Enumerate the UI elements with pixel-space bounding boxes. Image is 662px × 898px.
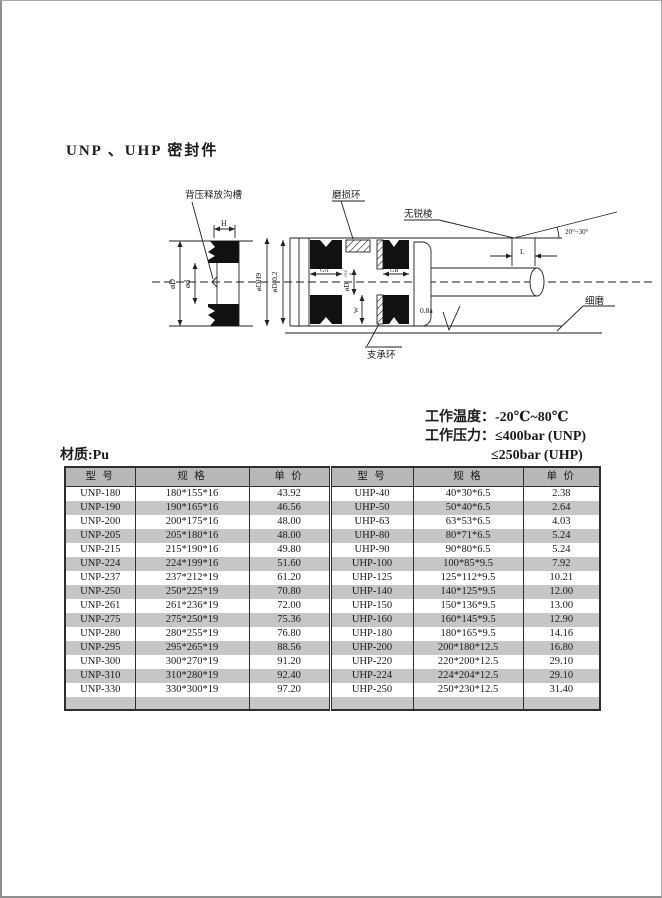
support-ring-strip-bottom [377,295,383,324]
working-temperature-line: 工作温度：-20℃~80℃ [425,408,662,427]
table-cell: UHP-150 [330,599,413,613]
table-cell: UHP-40 [330,487,413,502]
od-dim-label: øD [168,279,177,289]
table-cell: 13.00 [523,599,600,613]
table-cell: 16.80 [523,641,600,655]
table-cell: UNP-300 [65,655,135,669]
catalog-page: UNP 、UHP 密封件 [0,0,662,898]
table-cell: UHP-63 [330,515,413,529]
table-row: UNP-330330*300*1997.20UHP-250250*230*12.… [65,683,600,697]
rod-seal-b-bottom [383,295,409,324]
table-cell: UHP-220 [330,655,413,669]
table-cell: 5.24 [523,543,600,557]
table-cell: 92.40 [249,669,330,683]
table-row: UNP-190190*165*1646.56UHP-5050*40*6.52.6… [65,501,600,515]
table-cell: UNP-190 [65,501,135,515]
table-cell: 12.00 [523,585,600,599]
rod-seal-a-top [310,240,342,269]
table-cell: 10.21 [523,571,600,585]
col-header-price-unp: 单 价 [249,467,330,487]
table-cell: UHP-160 [330,613,413,627]
price-table-body: UNP-180180*155*1643.92UHP-4040*30*6.52.3… [65,487,600,711]
table-cell: 50*40*6.5 [413,501,523,515]
angle-label: 20°~30° [565,228,589,236]
table-cell: 72.00 [249,599,330,613]
table-cell: 48.00 [249,515,330,529]
odh9-dim-label: øDH9 [254,273,263,292]
wear-ring [346,240,370,252]
working-conditions: 工作温度：-20℃~80℃ 工作压力：≤400bar (UNP) ≤250bar… [425,408,662,465]
table-cell: 2.38 [523,487,600,502]
table-cell: UHP-90 [330,543,413,557]
seal-profile-top [208,241,239,263]
col-header-price-uhp: 单 价 [523,467,600,487]
table-cell: UHP-100 [330,557,413,571]
rod-seal-a-bottom [310,295,342,324]
table-cell [135,697,249,710]
table-cell: 140*125*9.5 [413,585,523,599]
table-cell: 215*190*16 [135,543,249,557]
wear-ring-label: 磨损环 [332,189,361,201]
table-cell: 180*165*9.5 [413,627,523,641]
table-row: UNP-237237*212*1961.20UHP-125125*112*9.5… [65,571,600,585]
col-header-spec-uhp: 规 格 [413,467,523,487]
table-cell: UNP-205 [65,529,135,543]
seal-profile-bottom [208,304,239,326]
table-row: UNP-224224*199*1651.60UHP-100100*85*9.57… [65,557,600,571]
table-cell: 125*112*9.5 [413,571,523,585]
table-cell: 97.20 [249,683,330,697]
table-cell: UNP-330 [65,683,135,697]
table-header-row: 型 号 规 格 单 价 型 号 规 格 单 价 [65,467,600,487]
table-cell: UHP-180 [330,627,413,641]
table-cell: UNP-224 [65,557,135,571]
table-cell: 330*300*19 [135,683,249,697]
table-row: UNP-295295*265*1988.56UHP-200200*180*12.… [65,641,600,655]
table-row-empty [65,697,600,710]
table-cell: UHP-50 [330,501,413,515]
table-cell: 29.10 [523,655,600,669]
table-cell: 237*212*19 [135,571,249,585]
od-minus-dim-label: øD-0.2 [270,271,279,292]
table-row: UNP-200200*175*1648.00UHP-6363*53*6.54.0… [65,515,600,529]
od-bore-dim-label: øD [343,283,351,292]
table-cell: 14.16 [523,627,600,641]
price-table: 型 号 规 格 单 价 型 号 规 格 单 价 UNP-180180*155*1… [64,466,601,711]
table-cell: 70.80 [249,585,330,599]
table-cell: 90*80*6.5 [413,543,523,557]
table-cell: 310*280*19 [135,669,249,683]
pressure-unp-value: ≤400bar (UNP) [495,429,586,444]
table-cell: UNP-280 [65,627,135,641]
temp-value: -20℃~80℃ [495,410,569,425]
table-cell: UHP-250 [330,683,413,697]
working-pressure-line: 工作压力：≤400bar (UNP) [425,427,662,446]
material-label: 材质:Pu [60,444,109,464]
temp-label: 工作温度： [425,410,495,425]
table-cell [413,697,523,710]
h-dim-label: H [221,219,227,228]
rod-seal-b-top [383,240,409,269]
col-header-model-unp: 型 号 [65,467,135,487]
table-cell: UHP-200 [330,641,413,655]
fine-grind-label: 细磨 [585,295,605,307]
table-cell: UNP-215 [65,543,135,557]
table-cell: 5.24 [523,529,600,543]
table-cell: 280*255*19 [135,627,249,641]
support-ring-label: 支承环 [367,349,396,361]
table-cell: 100*85*9.5 [413,557,523,571]
l-dim-label: L [520,247,525,256]
table-cell: UNP-310 [65,669,135,683]
no-sharp-edge-label: 无锐棱 [404,208,433,220]
table-cell: UNP-200 [65,515,135,529]
page-title: UNP 、UHP 密封件 [66,139,218,160]
table-cell: UNP-180 [65,487,135,502]
ga-dim-label: GA [320,268,329,274]
table-cell: UNP-237 [65,571,135,585]
table-row: UNP-280280*255*1976.80UHP-180180*165*9.5… [65,627,600,641]
id-dim-label: ød [183,280,192,288]
table-cell: UNP-295 [65,641,135,655]
table-cell: 48.00 [249,529,330,543]
col-header-spec-unp: 规 格 [135,467,249,487]
table-cell: 91.20 [249,655,330,669]
table-row: UNP-215215*190*1649.80UHP-9090*80*6.55.2… [65,543,600,557]
table-cell: 295*265*19 [135,641,249,655]
table-cell: 75.36 [249,613,330,627]
table-cell: 51.60 [249,557,330,571]
table-cell: UHP-80 [330,529,413,543]
col-header-model-uhp: 型 号 [330,467,413,487]
table-cell: 7.92 [523,557,600,571]
pressure-uhp-value: ≤250bar (UHP) [491,448,583,463]
table-cell: UHP-224 [330,669,413,683]
table-cell: 46.56 [249,501,330,515]
gb-dim-label: GB [390,268,398,274]
table-row: UNP-205205*180*1648.00UHP-8080*71*6.55.2… [65,529,600,543]
table-cell [523,697,600,710]
table-cell: 40*30*6.5 [413,487,523,502]
table-cell: 29.10 [523,669,600,683]
table-row: UNP-261261*236*1972.00UHP-150150*136*9.5… [65,599,600,613]
table-cell: 300*270*19 [135,655,249,669]
table-cell: 61.20 [249,571,330,585]
pressure-uhp-line: ≤250bar (UHP) [425,446,662,465]
table-cell: 200*180*12.5 [413,641,523,655]
table-cell: 12.90 [523,613,600,627]
table-cell: UHP-125 [330,571,413,585]
table-cell: 190*165*16 [135,501,249,515]
w-dim-label: W [353,306,360,313]
table-cell: 180*155*16 [135,487,249,502]
table-cell: 224*204*12.5 [413,669,523,683]
table-cell: UNP-250 [65,585,135,599]
table-row: UNP-300300*270*1991.20UHP-220220*200*12.… [65,655,600,669]
table-cell: 31.40 [523,683,600,697]
back-pressure-groove-label: 背压释放沟槽 [185,189,243,201]
table-cell: 205*180*16 [135,529,249,543]
table-row: UNP-275275*250*1975.36UHP-160160*145*9.5… [65,613,600,627]
seal-diagram: 背压释放沟槽 H øD ød øDH9 øD-0.2 磨损环 GA GB øD … [57,176,657,386]
table-cell: UNP-275 [65,613,135,627]
table-cell: 88.56 [249,641,330,655]
roughness-label: 0.8a [420,306,433,315]
table-cell: 150*136*9.5 [413,599,523,613]
od-tol-sub-label: 0 [348,273,353,275]
table-cell: 4.03 [523,515,600,529]
table-cell: 275*250*19 [135,613,249,627]
table-cell [249,697,330,710]
table-cell: UHP-140 [330,585,413,599]
table-cell [65,697,135,710]
table-cell: 220*200*12.5 [413,655,523,669]
table-cell: 250*225*19 [135,585,249,599]
support-ring-strip-top [377,240,383,269]
table-cell: 76.80 [249,627,330,641]
table-cell: 63*53*6.5 [413,515,523,529]
table-cell: 49.80 [249,543,330,557]
table-cell: 224*199*16 [135,557,249,571]
table-cell: 2.64 [523,501,600,515]
table-cell: 43.92 [249,487,330,502]
table-cell: 80*71*6.5 [413,529,523,543]
table-cell: UNP-261 [65,599,135,613]
table-cell: 250*230*12.5 [413,683,523,697]
table-cell: 261*236*19 [135,599,249,613]
table-cell: 200*175*16 [135,515,249,529]
table-row: UNP-180180*155*1643.92UHP-4040*30*6.52.3… [65,487,600,502]
table-row: UNP-250250*225*1970.80UHP-140140*125*9.5… [65,585,600,599]
table-cell: 160*145*9.5 [413,613,523,627]
table-row: UNP-310310*280*1992.40UHP-224224*204*12.… [65,669,600,683]
rod-end [530,268,544,296]
pressure-label: 工作压力： [425,429,495,444]
table-cell [330,697,413,710]
